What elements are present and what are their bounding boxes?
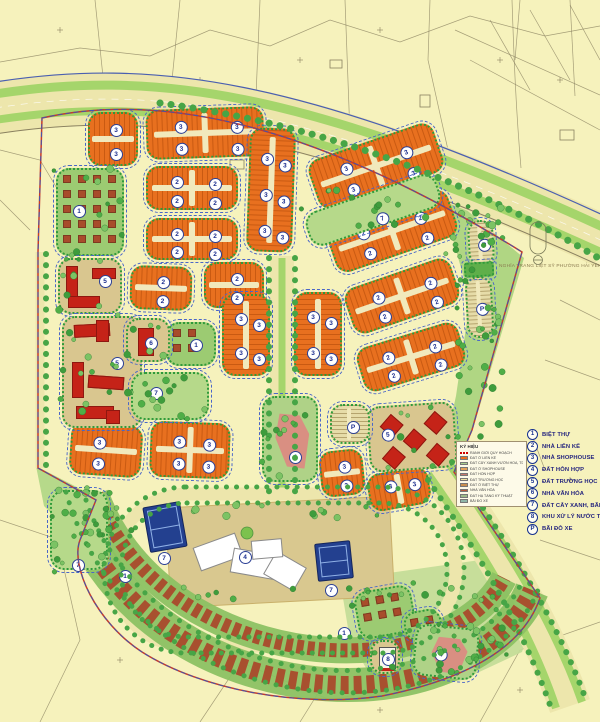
mini-legend-label: ĐẤT Ở SHOPHOUSE	[470, 467, 505, 471]
legend-item-1: 1BIỆT THỰ	[527, 429, 600, 441]
zone-marker-3: 3	[307, 347, 320, 360]
row-housing-block: 2222	[146, 218, 238, 260]
legend-item-8: 8KHU XỬ LÝ NƯỚC THẢI	[527, 512, 600, 524]
zone-marker-3: 3	[110, 124, 123, 137]
school-parcel: 5	[366, 401, 458, 473]
zone-marker-7: 7	[325, 584, 338, 597]
zone-marker-2: 2	[432, 357, 448, 373]
park-parcel: 7	[131, 372, 209, 420]
row-housing-block: 33	[318, 448, 367, 498]
legend-label: ĐẤT HỖN HỢP	[542, 467, 584, 473]
parking-lot: P	[330, 404, 370, 444]
school-parcel: 5	[58, 258, 122, 314]
zone-marker-3: 3	[202, 438, 215, 451]
mini-legend-label: ĐẤT HẠ TẦNG KỸ THUẬT	[470, 494, 513, 498]
green-square	[464, 261, 495, 278]
legend-item-5: 5ĐẤT TRƯỜNG HỌC	[527, 476, 600, 488]
row-housing-block: 33	[365, 465, 433, 513]
zone-marker-3: 3	[325, 317, 338, 330]
mini-legend-label: ĐẤT Ở LIỀN KỀ	[470, 456, 496, 460]
legend-item-3: 3NHÀ SHOPHOUSE	[527, 453, 600, 465]
zone-marker-2: 2	[156, 294, 169, 307]
legend-label: NHÀ LIÊN KẾ	[542, 444, 580, 450]
legend-label: ĐẤT TRƯỜNG HỌC	[542, 479, 598, 485]
legend-symbol: 1	[527, 429, 538, 440]
legend-symbol: 3	[527, 453, 538, 464]
zone-marker-3: 3	[276, 231, 289, 244]
zone-marker-2: 2	[171, 246, 184, 259]
zone-marker-2: 2	[386, 368, 402, 384]
zone-marker-3: 3	[91, 457, 105, 471]
legend-item-4: 4ĐẤT HỖN HỢP	[527, 464, 600, 476]
zone-marker-3: 3	[231, 142, 244, 155]
zone-marker-3: 3	[278, 159, 291, 172]
color-swatch	[460, 456, 468, 460]
zone-marker-1: 1	[338, 627, 351, 640]
mini-legend-label: ĐẤT CÂY XANH VƯỜN HOA, TDTT	[470, 461, 523, 465]
row-housing-block: 33	[88, 112, 138, 166]
zone-marker-P: P	[475, 302, 489, 316]
legend-symbol: 5	[527, 477, 538, 488]
legend-symbol: 2	[527, 441, 538, 452]
culture-house-parcel: 6	[126, 318, 170, 362]
zone-marker-3: 3	[235, 313, 248, 326]
zone-marker-3: 3	[339, 478, 353, 492]
zone-marker-2: 2	[209, 178, 222, 191]
zone-marker-4: 4	[239, 551, 252, 564]
color-swatch	[460, 462, 468, 466]
zone-marker-2: 2	[156, 275, 169, 288]
zone-marker-8: 8	[382, 653, 395, 666]
legend-item-7: 7ĐẤT CÂY XANH, BÃI ĐỖ XE	[527, 500, 600, 512]
zone-marker-2: 2	[209, 230, 222, 243]
row-housing-block: 3333	[145, 106, 265, 160]
legend-label: BIỆT THỰ	[542, 432, 570, 438]
zone-marker-3: 3	[172, 457, 185, 470]
legend-label: BÃI ĐỖ XE	[542, 526, 573, 532]
color-swatch	[460, 473, 468, 477]
color-swatch	[460, 467, 468, 471]
parking-lot: P	[467, 219, 495, 266]
legend-symbol: 4	[527, 465, 538, 476]
legend-label: ĐẤT CÂY XANH, BÃI ĐỖ XE	[542, 503, 600, 509]
legend-symbol: 6	[527, 488, 538, 499]
row-housing-block: 2222	[146, 166, 238, 210]
mini-legend-label: NHÀ VĂN HÓA	[470, 488, 495, 492]
legend-item-P: PBÃI ĐỖ XE	[527, 523, 600, 535]
zone-marker-3: 3	[93, 436, 107, 450]
zone-marker-2: 2	[231, 292, 244, 305]
row-housing-block: 3333	[294, 292, 342, 376]
villa-block: 1	[166, 322, 216, 366]
zone-marker-3: 3	[260, 152, 273, 165]
zone-marker-P: P	[347, 421, 360, 434]
zone-marker-3: 3	[407, 477, 422, 492]
mini-legend-label: ĐẤT Ở BIỆT THỰ	[470, 483, 499, 487]
zone-marker-5: 5	[99, 275, 112, 288]
legend-item-6: 6NHÀ VĂN HÓA	[527, 488, 600, 500]
zone-marker-3: 3	[175, 142, 188, 155]
legend-label: NHÀ SHOPHOUSE	[542, 455, 595, 461]
mixed-use-parcel: 4	[411, 623, 480, 681]
zone-marker-2: 2	[171, 228, 184, 241]
zone-marker-3: 3	[230, 120, 243, 133]
sports-court	[314, 540, 354, 582]
mini-legend-title: KÝ HIỆU	[460, 444, 523, 449]
zone-marker-7: 7	[72, 559, 85, 572]
zone-marker-2: 2	[419, 230, 436, 247]
mini-legend-rows: RANH GIỚI QUY HOẠCHĐẤT Ở LIỀN KỀĐẤT CÂY …	[460, 450, 523, 504]
legend-label: NHÀ VĂN HÓA	[542, 491, 584, 497]
zone-marker-3: 3	[253, 319, 266, 332]
zone-marker-2: 2	[429, 294, 446, 311]
zone-marker-3: 3	[337, 460, 351, 474]
zone-marker-3: 3	[258, 224, 271, 237]
zone-marker-4: 4	[289, 451, 302, 464]
legend-item-2: 2NHÀ LIÊN KẾ	[527, 441, 600, 453]
zone-marker-1: 1	[119, 570, 132, 583]
zone-marker-3: 3	[259, 188, 272, 201]
color-swatch	[460, 489, 468, 493]
boundary-swatch	[460, 452, 468, 454]
zone-marker-3: 3	[307, 311, 320, 324]
zone-marker-1: 1	[190, 339, 203, 352]
sports-court	[142, 501, 187, 553]
mini-legend-label: BÃI ĐỖ XE	[470, 499, 488, 503]
zone-marker-2: 2	[209, 248, 222, 261]
zone-marker-2: 2	[209, 197, 222, 210]
zone-marker-3: 3	[173, 435, 186, 448]
parking-lot: P	[464, 275, 494, 338]
zone-marker-3: 3	[325, 353, 338, 366]
master-plan-map: 3333333333332222222222223333222222222222…	[0, 0, 600, 722]
zone-marker-3: 3	[110, 148, 123, 161]
zone-marker-2: 2	[231, 273, 244, 286]
zone-marker-3: 3	[235, 347, 248, 360]
zone-marker-6: 6	[145, 337, 158, 350]
mini-legend-row: BÃI ĐỖ XE	[460, 499, 523, 504]
map-parcels-layer: 3333333333332222222222223333222222222222…	[0, 0, 600, 722]
zone-marker-2: 2	[171, 195, 184, 208]
map-legend: 1BIỆT THỰ2NHÀ LIÊN KẾ3NHÀ SHOPHOUSE4ĐẤT …	[527, 429, 600, 535]
zone-marker-2: 2	[171, 176, 184, 189]
row-housing-block: 333333	[246, 127, 296, 253]
zone-marker-3: 3	[253, 353, 266, 366]
zone-marker-5: 5	[111, 357, 124, 370]
zone-marker-P: P	[477, 238, 491, 252]
color-swatch	[460, 483, 468, 487]
row-housing-block: 22	[129, 265, 192, 311]
waste-water-facility: 8	[370, 640, 400, 674]
zone-marker-2: 2	[362, 245, 379, 262]
zone-marker-3: 3	[277, 195, 290, 208]
zone-marker-1: 1	[73, 205, 86, 218]
zone-marker-7: 7	[158, 552, 171, 565]
zone-marker-2: 2	[377, 308, 394, 325]
mini-legend-box: KÝ HIỆU RANH GIỚI QUY HOẠCHĐẤT Ở LIỀN KỀ…	[456, 441, 527, 507]
mini-legend-label: ĐẤT HỖN HỢP	[470, 472, 495, 476]
zone-marker-7: 7	[150, 387, 163, 400]
mini-legend-label: ĐẤT TRƯỜNG HỌC	[470, 478, 503, 482]
color-swatch	[460, 494, 468, 498]
row-housing-block: 3333	[222, 294, 270, 376]
row-housing-block: 3333	[149, 421, 231, 480]
zone-marker-3: 3	[202, 460, 215, 473]
mini-legend-row: ĐẤT CÂY XANH VƯỜN HOA, TDTT	[460, 461, 523, 466]
park-parcel: 7	[50, 490, 108, 570]
color-swatch	[460, 499, 468, 503]
zone-marker-3: 3	[174, 120, 187, 133]
color-swatch	[460, 478, 468, 482]
zone-marker-4: 4	[434, 647, 448, 661]
legend-label: KHU XỬ LÝ NƯỚC THẢI	[542, 514, 600, 520]
legend-symbol: 8	[527, 512, 538, 523]
mixed-use-parcel: 4	[262, 396, 318, 482]
row-housing-block: 33	[68, 422, 143, 479]
villa-block: 1	[56, 168, 124, 256]
mini-legend-label: RANH GIỚI QUY HOẠCH	[470, 451, 512, 455]
legend-symbol: 7	[527, 500, 538, 511]
legend-symbol: P	[527, 524, 538, 535]
zone-marker-5: 5	[381, 428, 395, 442]
